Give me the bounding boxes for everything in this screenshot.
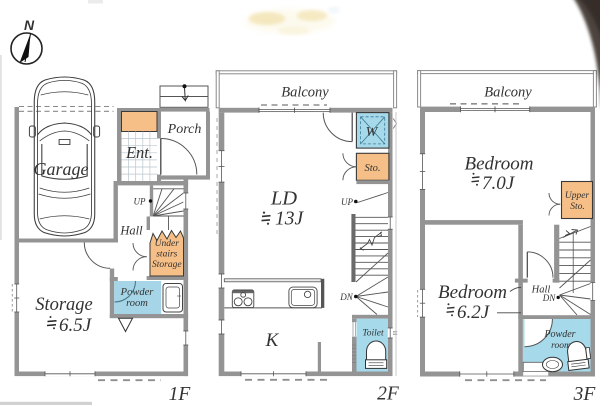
svg-text:2F: 2F — [377, 384, 400, 405]
svg-text:Under: Under — [155, 239, 180, 249]
svg-text:UP: UP — [341, 197, 353, 207]
svg-text:UP: UP — [134, 197, 146, 207]
svg-text:Porch: Porch — [167, 122, 202, 137]
svg-text:Balcony: Balcony — [484, 85, 532, 101]
svg-text:DN: DN — [339, 292, 353, 302]
svg-text:Ent.: Ent. — [125, 143, 153, 162]
svg-text:Bedroom: Bedroom — [465, 154, 534, 175]
svg-text:N: N — [24, 17, 35, 33]
svg-text:DN: DN — [542, 293, 556, 303]
svg-text:K: K — [265, 330, 280, 351]
svg-text:Storage: Storage — [152, 260, 182, 270]
svg-text:Bedroom: Bedroom — [438, 282, 507, 303]
svg-text:7.0J: 7.0J — [482, 173, 516, 194]
svg-text:3F: 3F — [573, 384, 597, 405]
svg-text:6.5J: 6.5J — [59, 315, 93, 336]
svg-text:room: room — [126, 298, 148, 309]
svg-text:Balcony: Balcony — [281, 85, 329, 101]
svg-text:Garage: Garage — [34, 159, 89, 179]
svg-text:W: W — [366, 125, 379, 140]
svg-text:6.2J: 6.2J — [457, 302, 491, 323]
svg-text:13J: 13J — [275, 209, 305, 230]
svg-text:Powder: Powder — [543, 329, 575, 340]
svg-text:Storage: Storage — [35, 295, 93, 315]
svg-text:Toilet: Toilet — [362, 329, 384, 339]
svg-text:stairs: stairs — [156, 250, 177, 260]
svg-text:LD: LD — [270, 188, 297, 210]
svg-text:Sto.: Sto. — [570, 202, 585, 212]
svg-text:Upper: Upper — [565, 191, 590, 201]
svg-text:1F: 1F — [169, 384, 192, 405]
svg-text:Hall: Hall — [119, 224, 143, 238]
svg-text:Powder: Powder — [120, 287, 155, 298]
svg-text:Sto.: Sto. — [364, 163, 380, 174]
